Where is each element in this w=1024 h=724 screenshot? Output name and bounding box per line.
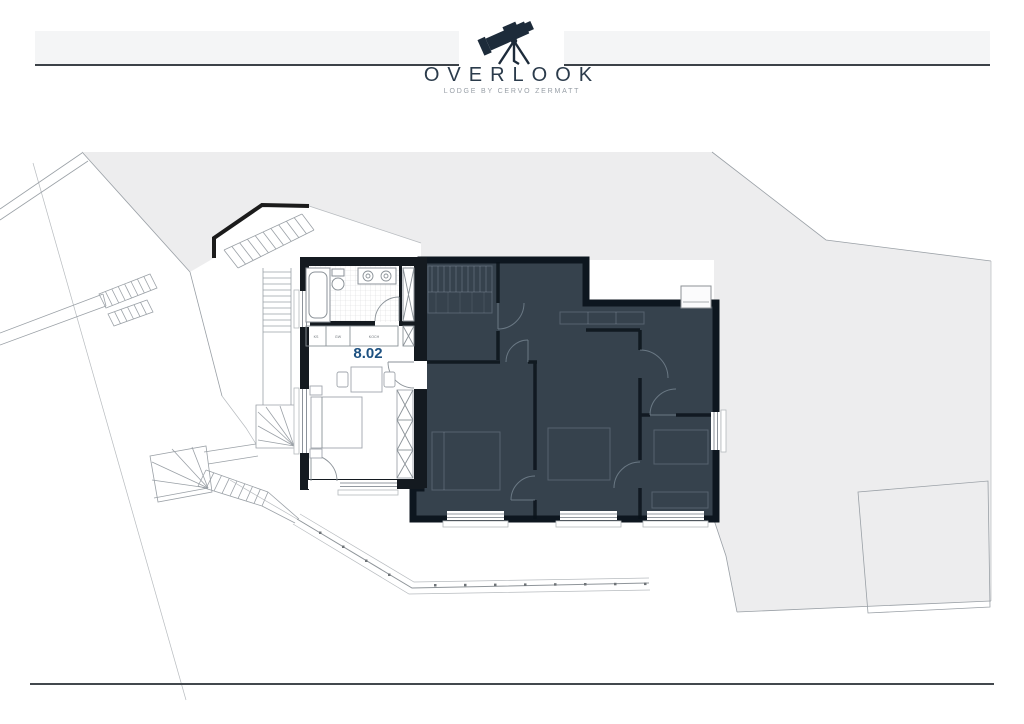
footer-rule bbox=[30, 683, 994, 685]
dark-unit bbox=[413, 260, 726, 527]
floorplan-page: OVERLOOK LODGE BY CERVO ZERMATT bbox=[0, 0, 1024, 724]
chimney-box bbox=[681, 286, 711, 308]
unit-802-label: 8.02 bbox=[353, 345, 382, 362]
kitchen-label-gw: GW bbox=[335, 335, 342, 339]
kitchen-label-koch: KOCH bbox=[369, 335, 380, 339]
unit-802[interactable]: KS GW KOCH 8.02 bbox=[294, 257, 427, 495]
site-plan-svg: KS GW KOCH 8.02 bbox=[0, 0, 1024, 724]
kitchen-label-ks: KS bbox=[314, 335, 319, 339]
